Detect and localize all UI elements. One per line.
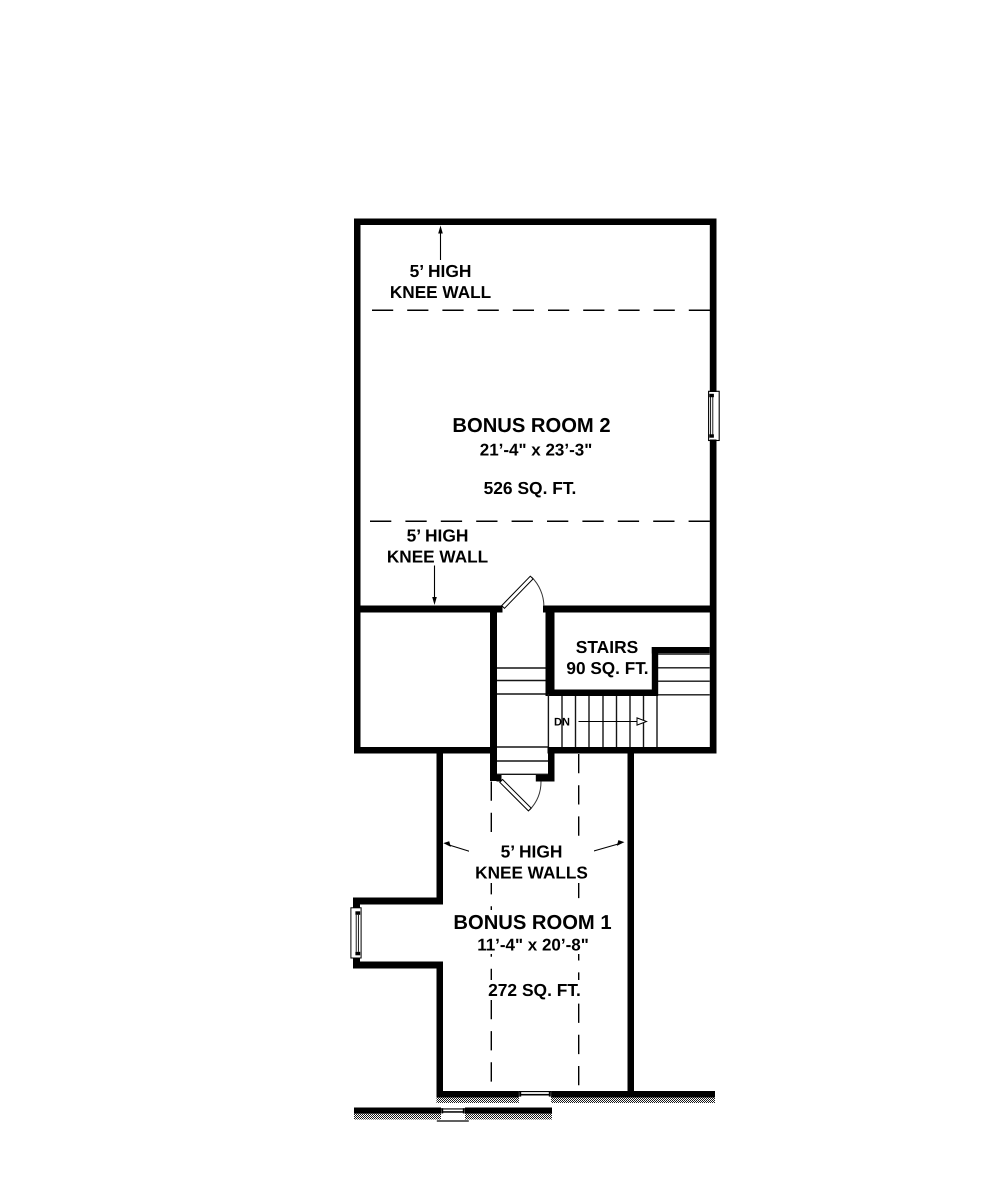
svg-text:BONUS ROOM 2: BONUS ROOM 2 (452, 415, 610, 437)
svg-text:KNEE WALL: KNEE WALL (387, 547, 488, 567)
svg-text:5’ HIGH: 5’ HIGH (410, 261, 472, 281)
svg-text:KNEE WALL: KNEE WALL (390, 282, 491, 302)
svg-text:272 SQ. FT.: 272 SQ. FT. (488, 980, 581, 1000)
svg-text:21’-4" x 23’-3": 21’-4" x 23’-3" (480, 441, 593, 460)
svg-text:STAIRS: STAIRS (576, 637, 638, 657)
svg-text:5’ HIGH: 5’ HIGH (501, 842, 563, 862)
svg-text:BONUS ROOM 1: BONUS ROOM 1 (453, 912, 611, 934)
svg-text:KNEE WALLS: KNEE WALLS (475, 863, 588, 883)
svg-text:DN: DN (554, 716, 570, 728)
svg-text:526 SQ. FT.: 526 SQ. FT. (484, 478, 577, 498)
svg-text:11’-4" x 20’-8": 11’-4" x 20’-8" (477, 936, 589, 955)
svg-text:5’ HIGH: 5’ HIGH (407, 526, 469, 546)
svg-text:90 SQ. FT.: 90 SQ. FT. (566, 658, 648, 678)
